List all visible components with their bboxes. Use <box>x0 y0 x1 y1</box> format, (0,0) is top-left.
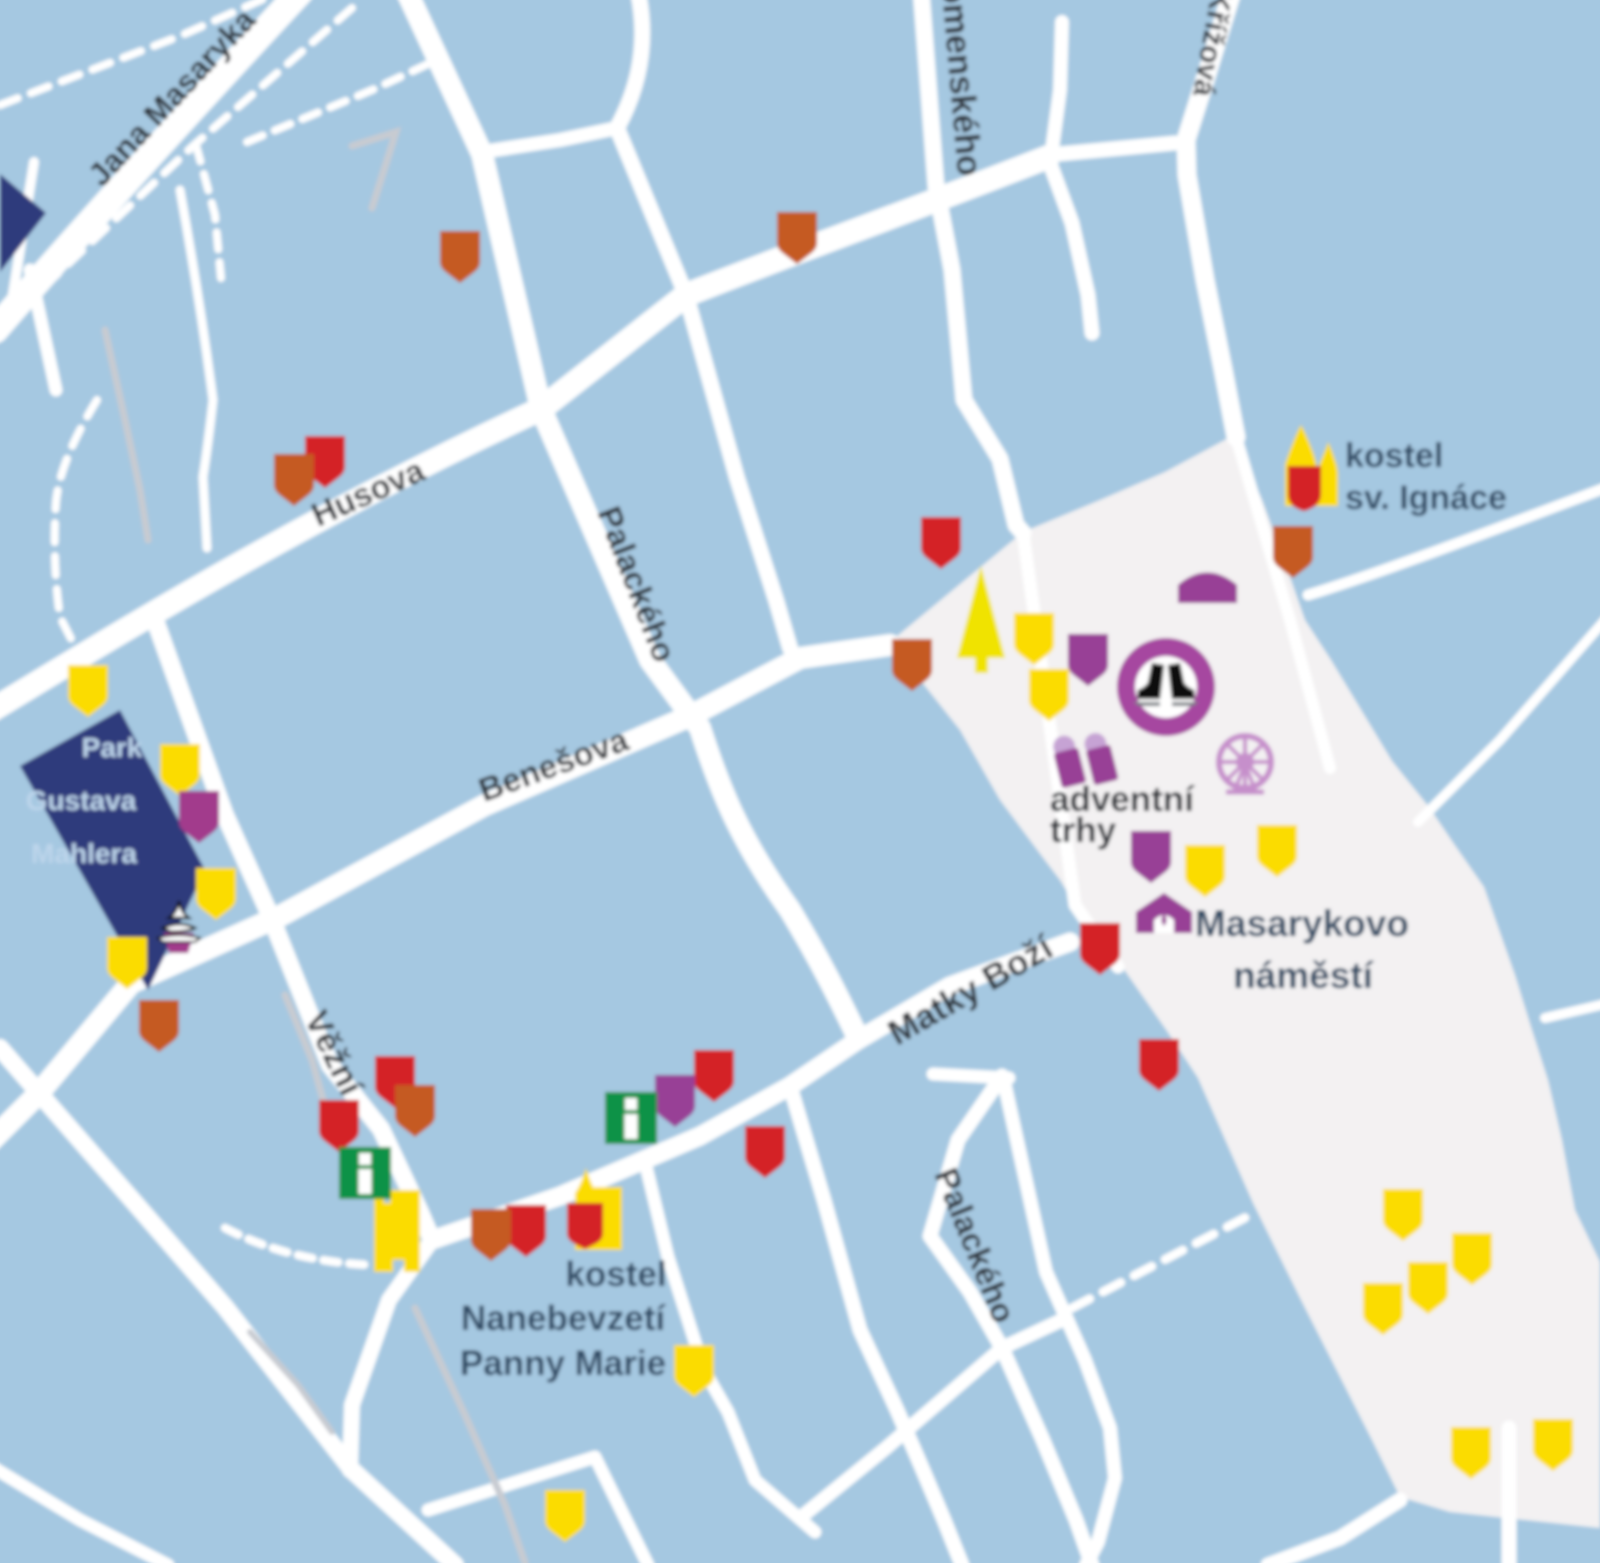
svg-text:Mahlera: Mahlera <box>31 838 137 869</box>
svg-text:kostel: kostel <box>1345 437 1443 475</box>
svg-text:náměstí: náměstí <box>1233 955 1375 996</box>
svg-text:trhy: trhy <box>1050 811 1117 850</box>
svg-text:Park: Park <box>82 732 143 763</box>
svg-text:kostel: kostel <box>565 1255 666 1294</box>
svg-text:sv. Ignáce: sv. Ignáce <box>1345 479 1507 517</box>
svg-text:Gustava: Gustava <box>26 785 137 816</box>
svg-text:Masarykovo: Masarykovo <box>1195 903 1409 944</box>
svg-text:Nanebevzetí: Nanebevzetí <box>461 1299 667 1338</box>
svg-text:Panny Marie: Panny Marie <box>460 1344 666 1383</box>
